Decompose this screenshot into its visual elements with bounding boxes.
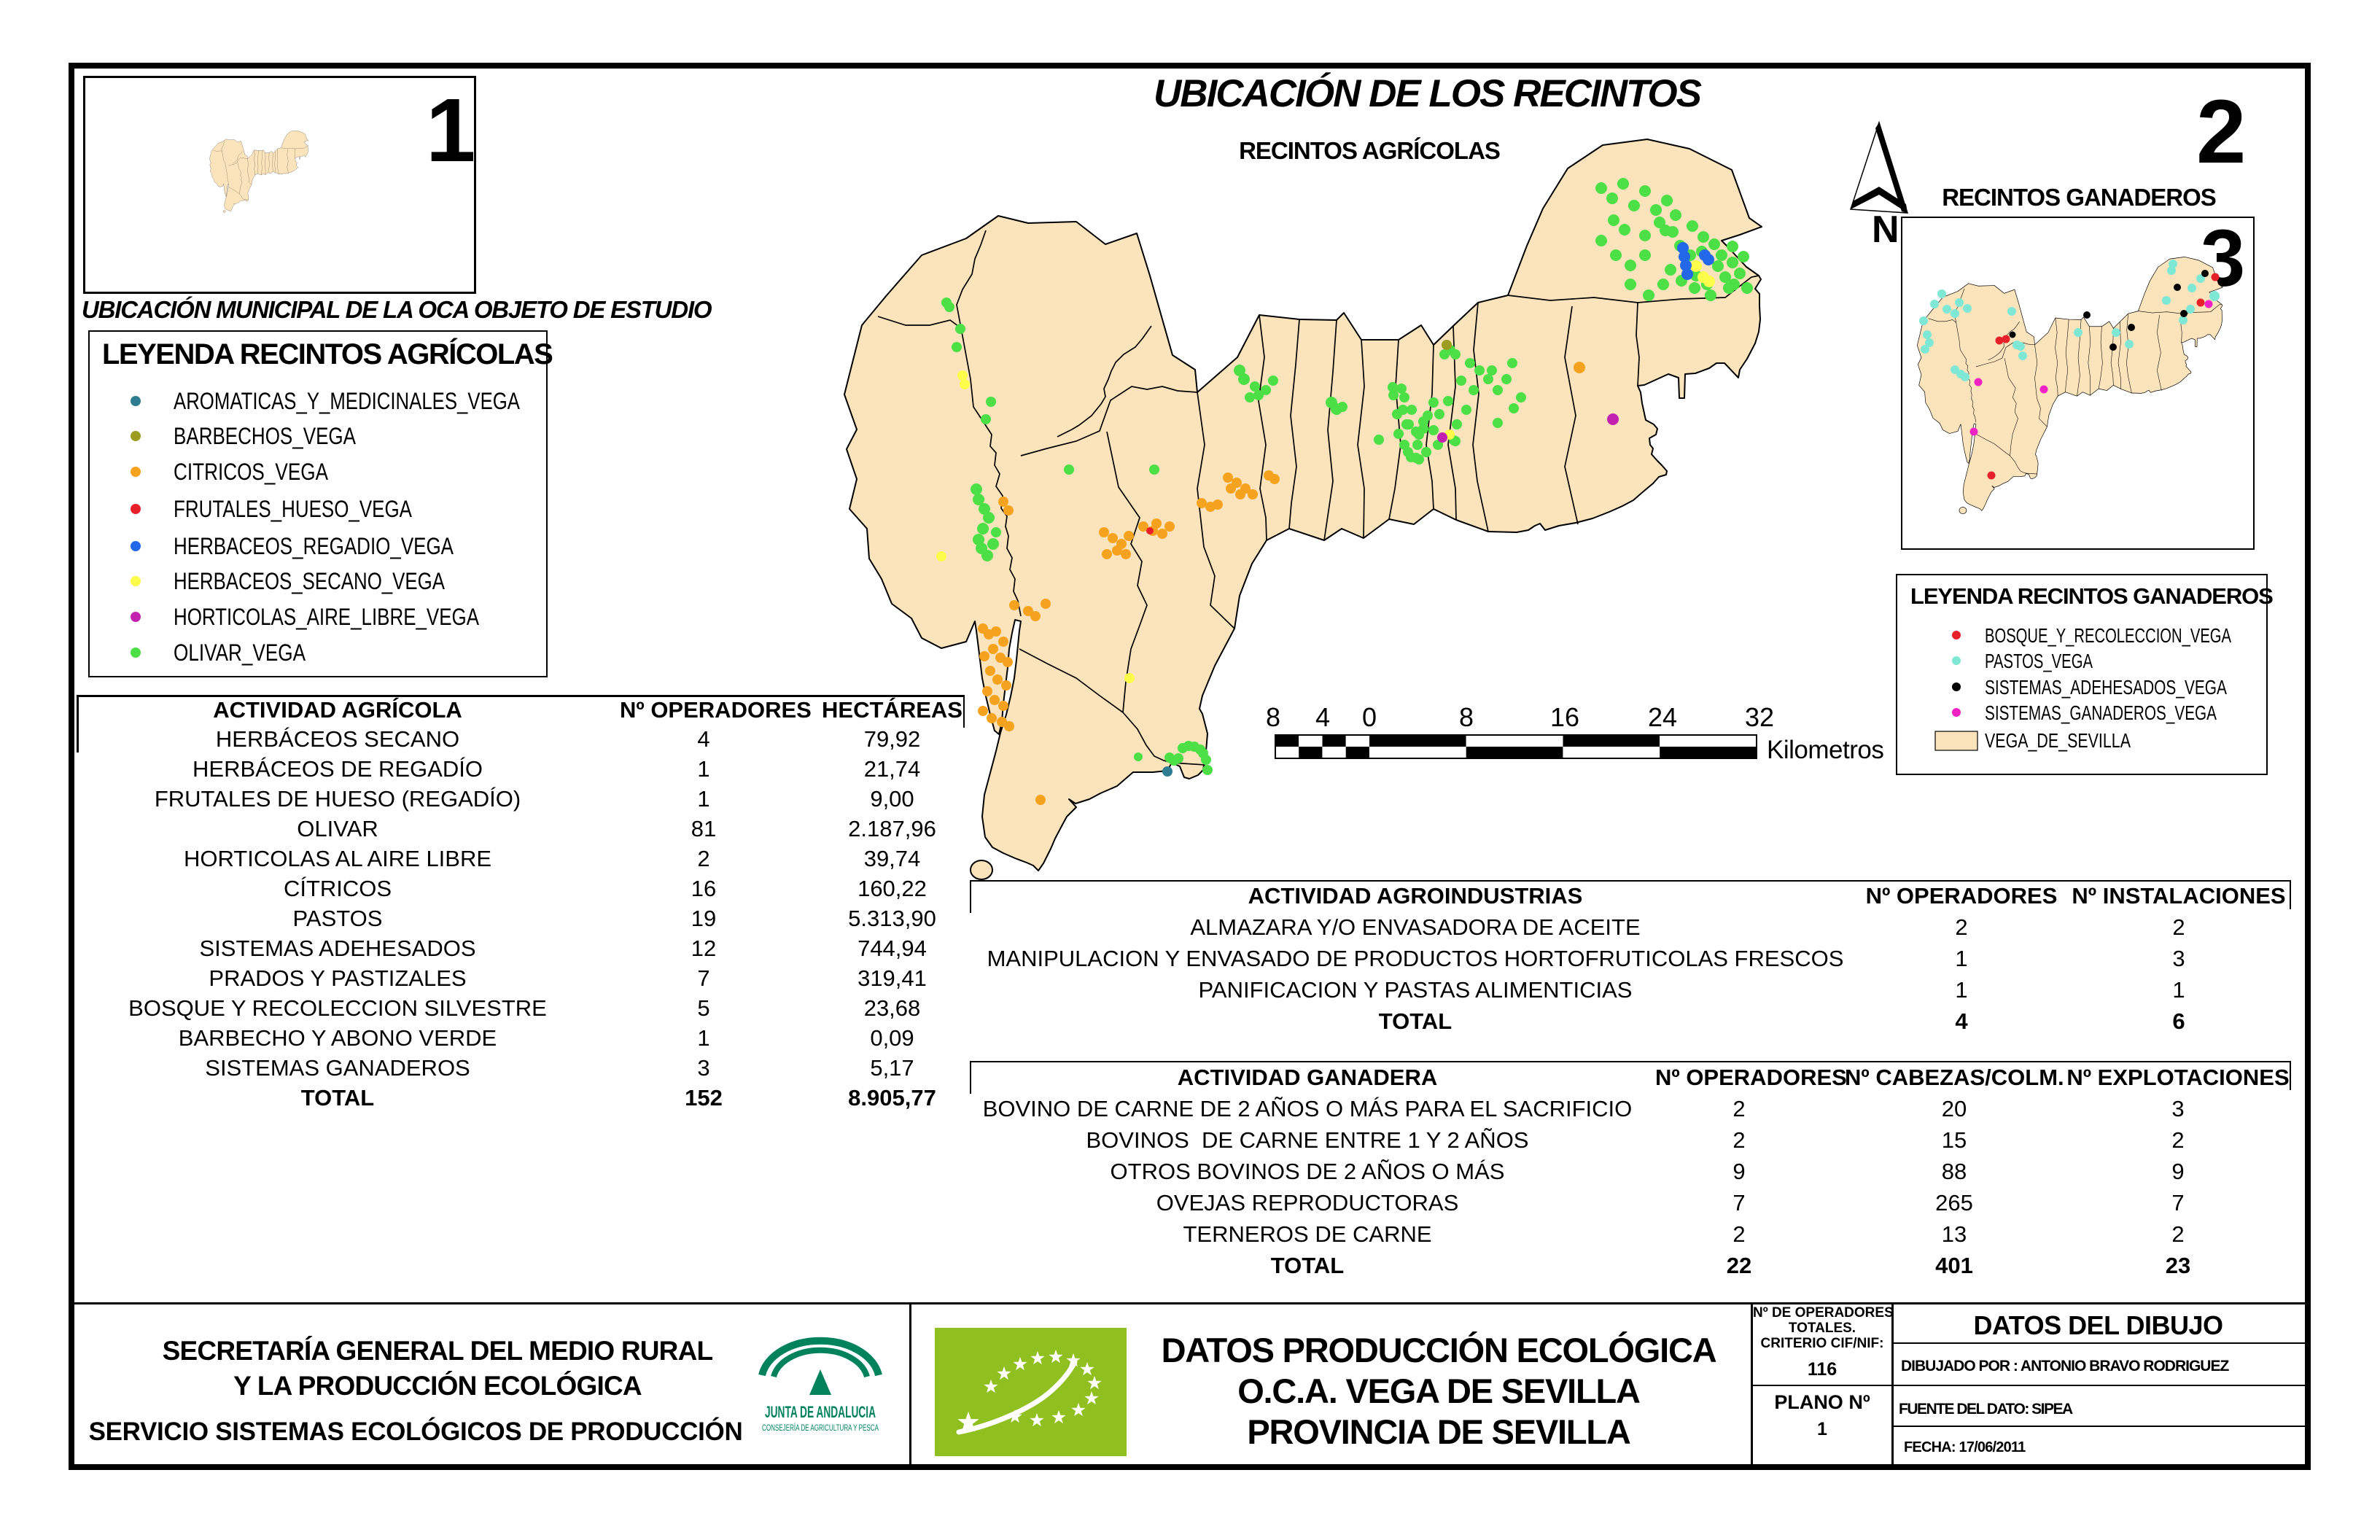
svg-text:CONSEJERÍA DE AGRICULTURA Y PE: CONSEJERÍA DE AGRICULTURA Y PESCA (762, 1423, 879, 1433)
svg-text:SISTEMAS_GANADEROS_VEGA: SISTEMAS_GANADEROS_VEGA (1985, 701, 2217, 724)
svg-text:VEGA_DE_SEVILLA: VEGA_DE_SEVILLA (1985, 729, 2131, 752)
svg-text:HERBACEOS_SECANO_VEGA: HERBACEOS_SECANO_VEGA (174, 568, 446, 594)
svg-text:CITRICOS_VEGA: CITRICOS_VEGA (174, 459, 329, 485)
svg-text:OLIVAR_VEGA: OLIVAR_VEGA (174, 639, 306, 666)
svg-text:FRUTALES_HUESO_VEGA: FRUTALES_HUESO_VEGA (174, 496, 413, 522)
svg-text:PASTOS_VEGA: PASTOS_VEGA (1985, 650, 2093, 672)
svg-text:SISTEMAS_ADEHESADOS_VEGA: SISTEMAS_ADEHESADOS_VEGA (1985, 676, 2227, 699)
svg-text:N: N (1872, 209, 1899, 251)
svg-text:AROMATICAS_Y_MEDICINALES_VEGA: AROMATICAS_Y_MEDICINALES_VEGA (174, 388, 521, 414)
svg-text:JUNTA DE ANDALUCIA: JUNTA DE ANDALUCIA (765, 1403, 876, 1421)
svg-text:HERBACEOS_REGADIO_VEGA: HERBACEOS_REGADIO_VEGA (174, 533, 454, 559)
svg-text:BARBECHOS_VEGA: BARBECHOS_VEGA (174, 423, 357, 449)
svg-text:BOSQUE_Y_RECOLECCION_VEGA: BOSQUE_Y_RECOLECCION_VEGA (1985, 624, 2231, 647)
svg-text:HORTICOLAS_AIRE_LIBRE_VEGA: HORTICOLAS_AIRE_LIBRE_VEGA (174, 604, 480, 630)
